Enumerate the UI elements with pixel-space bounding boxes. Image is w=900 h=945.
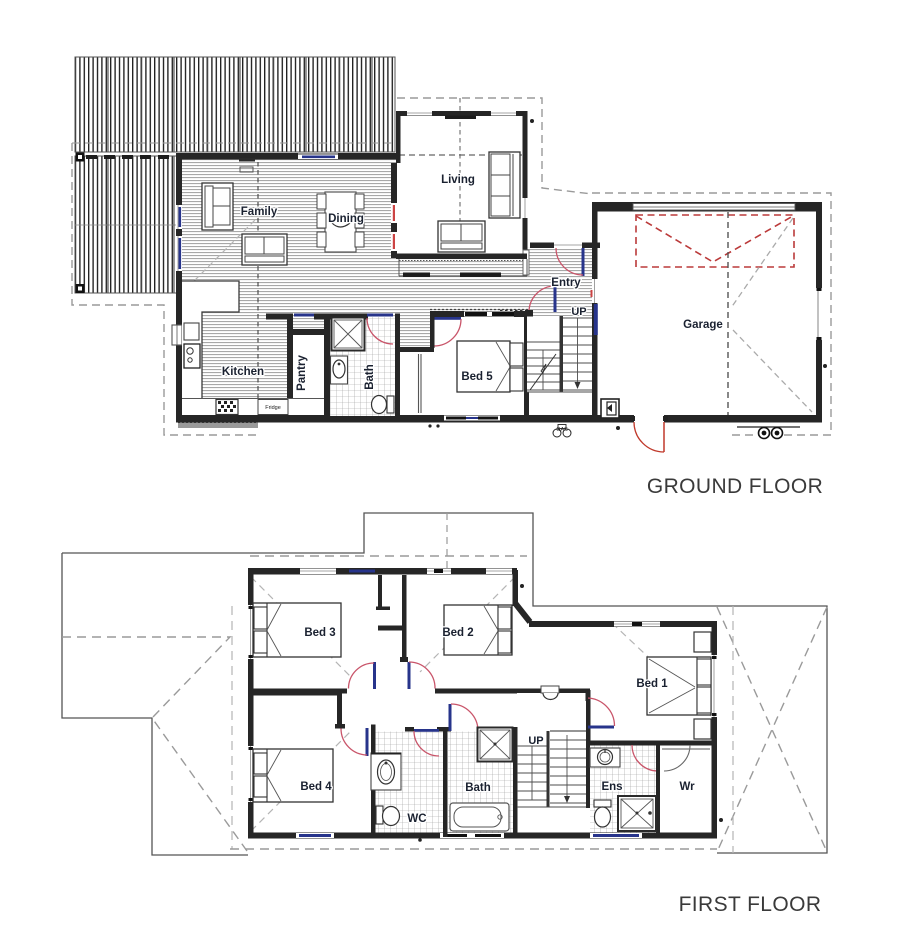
svg-text:FIRST FLOOR: FIRST FLOOR — [679, 893, 822, 916]
svg-text:WC: WC — [407, 813, 426, 825]
svg-text:Bed 5: Bed 5 — [461, 371, 493, 383]
svg-text:Dining: Dining — [328, 213, 364, 225]
svg-text:Kitchen: Kitchen — [222, 366, 264, 378]
svg-text:Bed 4: Bed 4 — [300, 781, 332, 793]
svg-text:Family: Family — [241, 206, 278, 218]
svg-text:Entry: Entry — [551, 277, 581, 289]
svg-text:Wr: Wr — [679, 781, 695, 793]
svg-text:Fridge: Fridge — [265, 405, 281, 411]
svg-text:GAS: GAS — [556, 427, 568, 433]
svg-text:Bed 2: Bed 2 — [442, 627, 473, 639]
svg-text:UP: UP — [571, 306, 586, 318]
svg-text:Pantry: Pantry — [296, 355, 308, 391]
svg-text:GROUND FLOOR: GROUND FLOOR — [647, 475, 823, 498]
svg-text:Bath: Bath — [465, 782, 491, 794]
svg-text:Garage: Garage — [683, 319, 723, 331]
svg-text:UP: UP — [528, 735, 543, 747]
svg-text:Bed 3: Bed 3 — [304, 627, 335, 639]
svg-text:Living: Living — [441, 174, 475, 186]
svg-text:Ens: Ens — [601, 781, 622, 793]
svg-text:Bath: Bath — [364, 364, 376, 390]
svg-text:Bed 1: Bed 1 — [636, 678, 668, 690]
